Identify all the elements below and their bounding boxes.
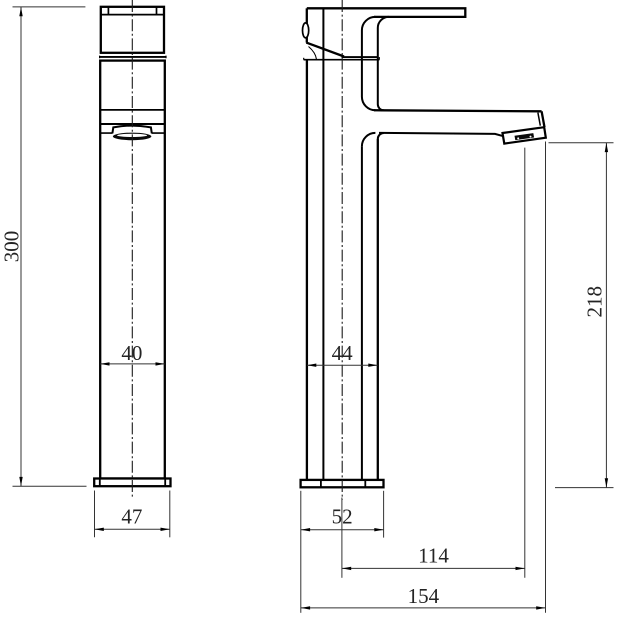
svg-text:114: 114 <box>418 543 449 567</box>
svg-text:300: 300 <box>0 231 23 263</box>
svg-text:40: 40 <box>121 341 142 365</box>
svg-text:218: 218 <box>582 286 606 318</box>
svg-text:44: 44 <box>332 341 354 365</box>
svg-text:154: 154 <box>408 584 440 608</box>
svg-text:47: 47 <box>121 505 142 529</box>
